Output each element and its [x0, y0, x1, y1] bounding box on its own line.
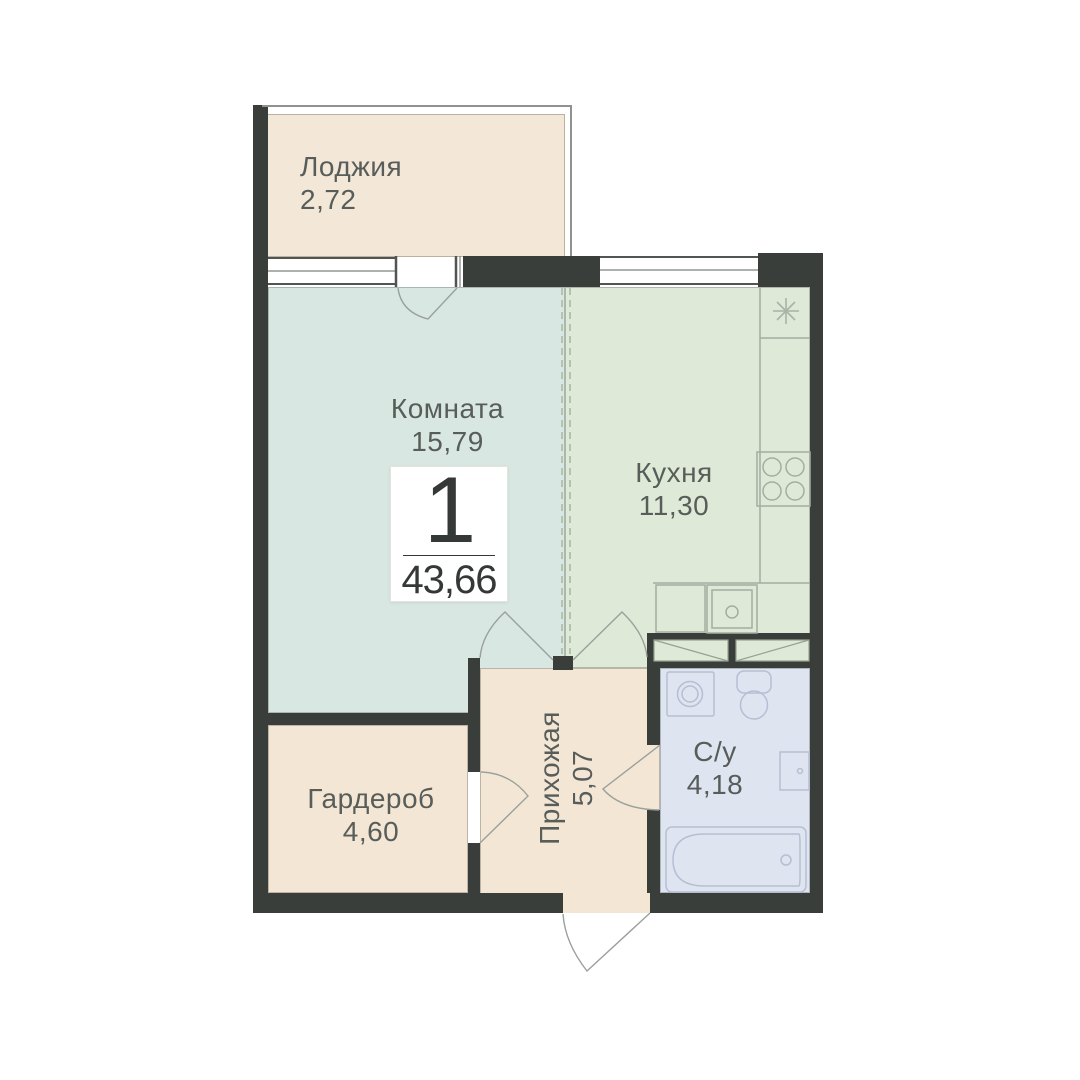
cabinet-icon	[654, 640, 809, 661]
kitchen-sink-icon	[707, 585, 757, 633]
bathroom-sink-icon	[780, 752, 809, 790]
room-label-hallway: Прихожая 5,07	[533, 693, 599, 863]
bathtub-icon	[666, 827, 806, 892]
balcony-door-icon	[398, 288, 457, 319]
room-area: 5,07	[566, 693, 599, 863]
entrance-door-icon	[563, 913, 650, 971]
zone-divider	[562, 288, 570, 654]
room-name: Комната	[360, 392, 535, 425]
room-name: Гардероб	[283, 782, 459, 815]
window-icon	[600, 257, 758, 284]
unit-total-area: 43,66	[401, 559, 496, 601]
badge-divider	[403, 555, 495, 556]
kitchen-door-icon	[573, 612, 647, 660]
room-label-living: Комната 15,79	[360, 392, 535, 458]
plan-linework	[0, 0, 1080, 1080]
room-area: 11,30	[600, 489, 748, 522]
room-label-bathroom: С/у 4,18	[655, 735, 775, 801]
room-name: Кухня	[600, 456, 748, 489]
room-name: Лоджия	[300, 150, 402, 183]
floor-plan: Лоджия 2,72 Комната 15,79 Кухня 11,30 Га…	[0, 0, 1080, 1080]
room-door-icon	[480, 612, 553, 660]
toilet-icon	[737, 671, 771, 719]
washing-machine-icon	[667, 672, 714, 716]
room-label-kitchen: Кухня 11,30	[600, 456, 748, 522]
window-icon	[268, 256, 460, 287]
room-label-loggia: Лоджия 2,72	[300, 150, 402, 216]
room-area: 4,60	[283, 815, 459, 848]
bathroom-door-icon	[603, 745, 660, 810]
room-label-wardrobe: Гардероб 4,60	[283, 782, 459, 848]
unit-number: 1	[424, 467, 474, 553]
room-name: С/у	[655, 735, 775, 768]
room-name: Прихожая	[533, 693, 566, 863]
room-area: 15,79	[360, 425, 535, 458]
stove-icon	[757, 452, 810, 506]
unit-badge: 1 43,66	[390, 466, 508, 602]
wardrobe-door-icon	[480, 772, 528, 843]
room-area: 4,18	[655, 768, 775, 801]
room-area: 2,72	[300, 183, 402, 216]
vent-icon	[773, 298, 799, 324]
